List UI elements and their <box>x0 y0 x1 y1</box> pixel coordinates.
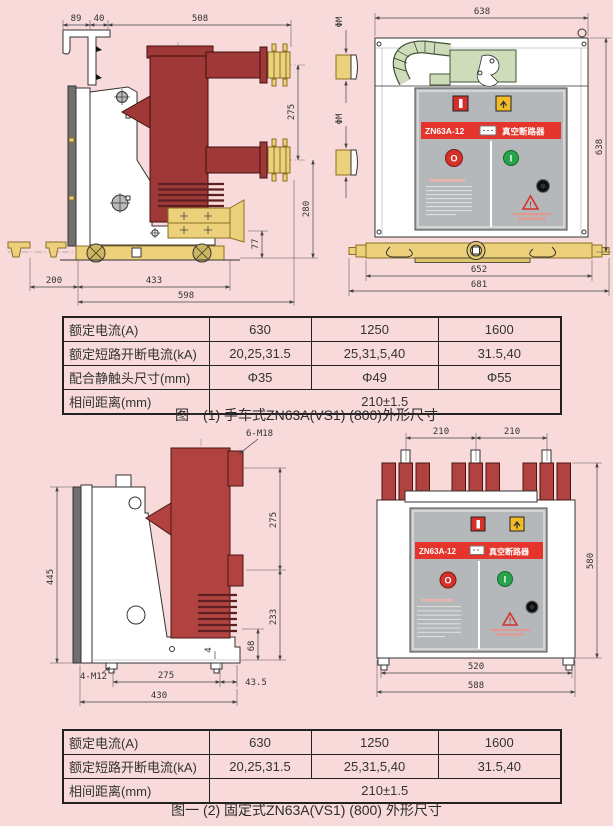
dim-652: 652 <box>471 265 487 275</box>
dim-520: 520 <box>468 662 484 672</box>
dim-280: 280 <box>302 201 312 217</box>
front-panel: ZN63A-12 真空断路器 O I ! <box>410 508 547 652</box>
row-label: 额定电流(A) <box>63 730 209 755</box>
lower-terminal-pad <box>228 555 243 586</box>
open-button-label: O <box>444 576 451 586</box>
close-button-label: I <box>504 575 507 585</box>
dim-508: 508 <box>192 14 208 24</box>
spec-table-fixed: 额定电流(A) 630 1250 1600 额定短路开断电流(kA) 20,25… <box>62 729 562 804</box>
fig2-front-view-drawing: ZN63A-12 真空断路器 O I ! <box>355 425 613 717</box>
top-hanger-bracket <box>63 30 110 85</box>
dim-598: 598 <box>178 291 194 301</box>
open-button-label: O <box>450 154 457 164</box>
fig2-caption: 图一 (2) 固定式ZN63A(VS1) (800) 外形尺寸 <box>0 800 613 820</box>
spec-table-handcart: 额定电流(A) 630 1250 1600 额定短路开断电流(kA) 20,25… <box>62 316 562 415</box>
rail-hook <box>8 242 30 257</box>
front-slot-strip <box>405 491 537 502</box>
product-name-label: 真空断路器 <box>502 127 545 137</box>
cell-value: 20,25,31.5 <box>209 342 311 366</box>
model-label: ZN63A-12 <box>425 126 464 136</box>
warning-mark: ! <box>508 617 513 626</box>
rail-hook <box>46 242 66 257</box>
dim-681: 681 <box>471 280 487 290</box>
dim-588: 588 <box>468 681 484 691</box>
cell-value: 630 <box>209 730 311 755</box>
dim-430: 430 <box>151 691 167 701</box>
close-button-label: I <box>510 154 513 164</box>
static-contact-references: ΦM ΦM <box>335 16 358 198</box>
dim-210-right: 210 <box>504 427 520 437</box>
handcart-crossbar <box>349 242 609 263</box>
dim-275-bottom: 275 <box>158 671 174 681</box>
row-label: 额定电流(A) <box>63 317 209 342</box>
cell-value: 31.5,40 <box>438 342 561 366</box>
dim-6-M18: 6-M18 <box>246 429 273 439</box>
dim-77: 77 <box>251 239 261 250</box>
dim-210-left: 210 <box>433 427 449 437</box>
dim-68: 68 <box>247 641 257 652</box>
cell-value: 1250 <box>311 317 438 342</box>
dim-445: 445 <box>46 569 56 585</box>
dim-433: 433 <box>146 276 162 286</box>
fig1-front-view-drawing: ZN63A-12 真空断路器 O I ! <box>330 0 613 312</box>
row-label: 额定短路开断电流(kA) <box>63 342 209 366</box>
cell-value: 31.5,40 <box>438 755 561 779</box>
front-panel: ZN63A-12 真空断路器 O I ! <box>415 88 567 230</box>
fig2-side-view-drawing: 445 6-M18 275 233 68 4 4-M12 275 43.5 43… <box>30 425 360 717</box>
row-label: 额定短路开断电流(kA) <box>63 755 209 779</box>
datasheet-page: 89 40 508 275 280 77 200 433 598 <box>0 0 613 826</box>
table-row: 额定电流(A) 630 1250 1600 <box>63 730 561 755</box>
table-row: 额定电流(A) 630 1250 1600 <box>63 317 561 342</box>
dim-200: 200 <box>46 276 62 286</box>
lower-contact-arm-tip <box>268 139 290 181</box>
cell-value: Φ55 <box>438 366 561 390</box>
cell-value: 630 <box>209 317 311 342</box>
dim-phi-upper: ΦM <box>335 16 345 27</box>
dim-275: 275 <box>287 104 297 120</box>
cell-value: Φ49 <box>311 366 438 390</box>
product-name-label: 真空断路器 <box>489 547 530 557</box>
cell-value: 1600 <box>438 730 561 755</box>
dim-89: 89 <box>71 14 82 24</box>
dim-4-M12: 4-M12 <box>80 672 107 682</box>
lifting-ring <box>578 29 586 37</box>
dim-phi-lower: ΦM <box>335 113 345 124</box>
fig1-side-view-drawing: 89 40 508 275 280 77 200 433 598 <box>0 0 340 312</box>
dim-40: 40 <box>94 14 105 24</box>
dim-580: 580 <box>586 553 596 569</box>
fig1-caption: 图一(1) 手车式ZN63A(VS1) (800)外形尺寸 <box>0 405 613 425</box>
cell-value: 20,25,31.5 <box>209 755 311 779</box>
dim-638-top: 638 <box>474 7 490 17</box>
upper-contact-arm-tip <box>268 44 290 86</box>
dim-638-right: 638 <box>595 139 605 155</box>
cell-value: 1250 <box>311 730 438 755</box>
model-label: ZN63A-12 <box>419 547 456 556</box>
cell-value: 1600 <box>438 317 561 342</box>
cell-value: Φ35 <box>209 366 311 390</box>
row-label: 配合静触头尺寸(mm) <box>63 366 209 390</box>
cell-value: 25,31,5,40 <box>311 755 438 779</box>
table-row: 额定短路开断电流(kA) 20,25,31.5 25,31,5,40 31.5,… <box>63 755 561 779</box>
dim-4: 4 <box>204 647 214 652</box>
upper-terminal-pad <box>228 451 243 486</box>
table-row: 配合静触头尺寸(mm) Φ35 Φ49 Φ55 <box>63 366 561 390</box>
cell-value: 25,31,5,40 <box>311 342 438 366</box>
dim-233: 233 <box>269 609 279 625</box>
dim-275-right: 275 <box>269 512 279 528</box>
table-row: 额定短路开断电流(kA) 20,25,31.5 25,31,5,40 31.5,… <box>63 342 561 366</box>
dim-43-5: 43.5 <box>245 678 267 688</box>
warning-mark: ! <box>528 201 533 210</box>
